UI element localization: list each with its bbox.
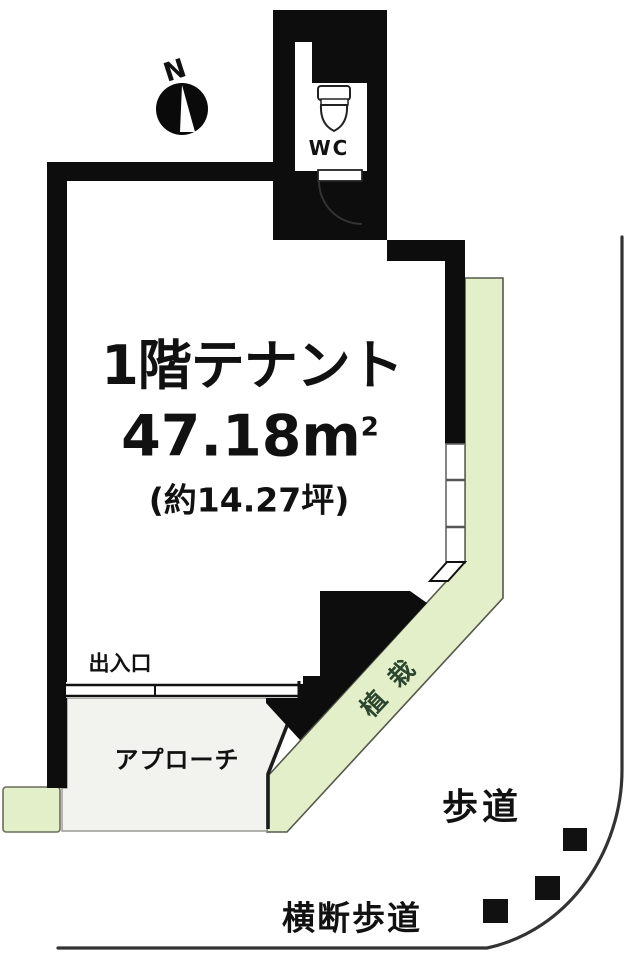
top-wall — [47, 162, 293, 181]
floor-plan: N WC 1階テナント 47.18m2 (約14.27坪) 出入口 アプローチ … — [0, 0, 640, 963]
area-m2-sup: 2 — [361, 413, 379, 443]
right-step-wall — [387, 240, 465, 261]
unit-area-tsubo: (約14.27坪) — [149, 484, 350, 517]
unit-area: 47.18m2 — [121, 409, 379, 466]
left-wall — [47, 162, 67, 788]
window-strip — [446, 444, 465, 563]
sidewalk-label: 歩道 — [442, 790, 522, 826]
crosswalk-label: 横断歩道 — [282, 902, 422, 935]
approach-label: アプローチ — [115, 748, 240, 772]
crosswalk-marker — [535, 876, 560, 900]
wc-label: WC — [309, 138, 350, 158]
unit-title: 1階テナント — [101, 339, 403, 393]
wc-door-leaf — [318, 170, 362, 181]
crosswalk-marker — [563, 828, 587, 851]
right-wall — [445, 261, 465, 444]
planting-square — [3, 787, 60, 832]
entrance-label: 出入口 — [89, 654, 152, 675]
north-compass — [156, 83, 208, 135]
crosswalk-marker — [483, 899, 508, 923]
area-m2-value: 47.18m — [121, 404, 361, 470]
